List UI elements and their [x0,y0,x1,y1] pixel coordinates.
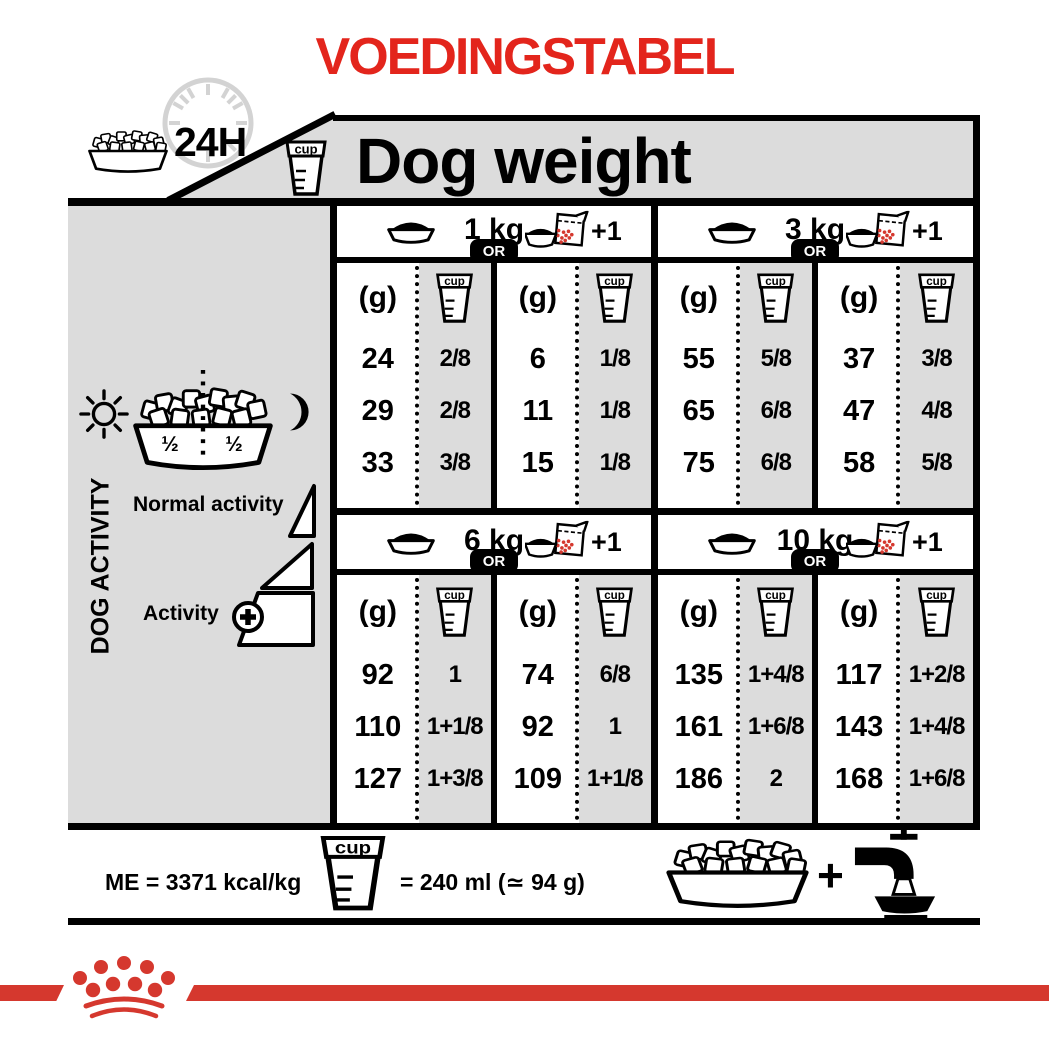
red-band-left [0,985,64,1001]
grams-header: (g) [359,595,397,629]
table-row: 585/8 [818,437,973,489]
cup-value: 1+1/8 [587,765,643,793]
feeding-table-page: cup [0,0,1049,1049]
table-row: 1101+1/8 [337,701,491,753]
measuring-cup-icon [916,272,957,324]
table-row: 474/8 [818,385,973,437]
red-band-right [186,985,1049,1001]
24h-label: 24H [174,119,246,166]
measuring-cup-icon [916,586,957,638]
grams-value: 92 [522,711,554,744]
page-title: VOEDINGSTABEL [0,27,1049,87]
dog-activity-label: DOG ACTIVITY [87,478,116,655]
kibble-bowl-icon-header [84,126,172,176]
bowl-pouch-icon [846,208,910,258]
table-row: 1171+2/8 [818,649,973,701]
measuring-cup-icon [755,272,796,324]
grams-header: (g) [680,281,718,315]
table-row: 61/8 [497,333,651,385]
cup-value: 1 [609,713,621,741]
activity-label: Activity [143,602,219,626]
activity-triangle-medium [259,541,315,591]
bowl-pouch-icon [846,518,910,568]
normal-activity-label: Normal activity [133,493,284,517]
cup-value: 6/8 [600,661,630,689]
grams-value: 75 [683,447,715,480]
measuring-cup-icon [755,586,796,638]
measuring-cup-icon [594,586,635,638]
cup-value: 1+4/8 [748,661,804,689]
subtable-3kg-kibble-only: (g) 555/8 656/8 756/8 [658,263,812,508]
grams-value: 109 [514,763,562,796]
cup-value: 1/8 [600,397,630,425]
cup-value: 5/8 [921,449,951,477]
plus-one-label: +1 [591,216,622,247]
grams-header: (g) [840,595,878,629]
table-right-border [973,115,980,829]
sun-icon [79,389,129,439]
moon-icon [283,391,313,433]
grams-value: 168 [835,763,883,796]
grams-value: 15 [522,447,554,480]
band-top-border [333,115,978,121]
or-badge: OR [470,549,518,573]
bowl-pouch-icon [525,518,589,568]
cup-value: 6/8 [761,449,791,477]
subtable-10kg-kibble-only: (g) 1351+4/8 1611+6/8 1862 [658,575,812,823]
bowl-pouch-icon [525,208,589,258]
cup-value: 4/8 [921,397,951,425]
footer-bottom-border [68,918,980,925]
or-badge: OR [791,549,839,573]
me-kcal-label: ME = 3371 kcal/kg [105,869,301,896]
table-row: 921 [497,701,651,753]
grams-header: (g) [840,281,878,315]
table-row: 1431+4/8 [818,701,973,753]
subtable-10kg-kibble-plus-wet: (g) 1171+2/8 1431+4/8 1681+6/8 [818,575,973,823]
measuring-cup-icon [434,586,475,638]
grams-value: 65 [683,395,715,428]
plus-circle-icon [230,599,266,635]
grams-value: 47 [843,395,875,428]
plus-sign: + [817,848,844,902]
cup-value: 1+2/8 [909,661,965,689]
subtable-1kg-kibble-plus-wet: (g) 61/8 111/8 151/8 [497,263,651,508]
subtable-6kg-kibble-only: (g) 921 1101+1/8 1271+3/8 [337,575,491,823]
grams-value: 33 [362,447,394,480]
cup-value: 1/8 [600,449,630,477]
table-row: 1862 [658,753,812,805]
cup-equivalence-label: = 240 ml (≃ 94 g) [400,869,585,896]
measuring-cup-icon-footer [317,834,389,912]
half-right-label: ½ [225,433,243,457]
cup-value: 1+1/8 [427,713,483,741]
cup-value: 2/8 [440,397,470,425]
section-header-3kg: 3 kg +1 OR [658,206,973,257]
table-row: 921 [337,649,491,701]
grams-header: (g) [680,595,718,629]
plus-one-label: +1 [912,216,943,247]
table-row: 151/8 [497,437,651,489]
royal-canin-crown-logo [70,955,178,1022]
grams-value: 92 [362,659,394,692]
table-row: 1611+6/8 [658,701,812,753]
table-row: 756/8 [658,437,812,489]
grams-header: (g) [519,595,557,629]
activity-triangle-small [287,483,317,539]
half-left-label: ½ [161,433,179,457]
grams-value: 74 [522,659,554,692]
band1-bottom-border [330,508,980,515]
table-row: 1091+1/8 [497,753,651,805]
cup-value: 1+6/8 [748,713,804,741]
subtable-1kg-kibble-only: (g) 242/8 292/8 333/8 [337,263,491,508]
grams-value: 37 [843,343,875,376]
plus-one-label: +1 [591,527,622,558]
table-bottom-border [68,823,980,830]
table-row: 746/8 [497,649,651,701]
cup-value: 1/8 [600,345,630,373]
section-header-10kg: 10 kg +1 OR [658,515,973,569]
table-row: 292/8 [337,385,491,437]
table-top-border [68,198,980,206]
measuring-cup-icon-header [283,139,329,197]
grams-value: 6 [530,343,546,376]
table-row: 656/8 [658,385,812,437]
cup-value: 5/8 [761,345,791,373]
grams-value: 24 [362,343,394,376]
plus-one-label: +1 [912,527,943,558]
cup-value: 2 [770,765,782,793]
cup-value: 3/8 [921,345,951,373]
grams-value: 11 [522,395,553,428]
dog-weight-title: Dog weight [356,124,691,198]
grams-value: 186 [675,763,723,796]
water-tap-icon [853,822,939,920]
table-row: 333/8 [337,437,491,489]
table-row: 1681+6/8 [818,753,973,805]
cup-value: 1 [449,661,461,689]
subtable-3kg-kibble-plus-wet: (g) 373/8 474/8 585/8 [818,263,973,508]
kibble-bowl-icon-footer [659,832,816,913]
subtable-6kg-kibble-plus-wet: (g) 746/8 921 1091+1/8 [497,575,651,823]
table-row: 373/8 [818,333,973,385]
section-header-6kg: 6 kg +1 OR [337,515,651,569]
grams-value: 58 [843,447,875,480]
cup-value: 1+4/8 [909,713,965,741]
cup-value: 2/8 [440,345,470,373]
measuring-cup-icon [434,272,475,324]
cup-value: 6/8 [761,397,791,425]
or-badge: OR [470,239,518,263]
half-half-bowl-icon [126,368,280,472]
grams-value: 127 [354,763,402,796]
grams-value: 29 [362,395,394,428]
table-row: 111/8 [497,385,651,437]
measuring-cup-icon [594,272,635,324]
cup-value: 1+3/8 [427,765,483,793]
grams-value: 135 [675,659,723,692]
grams-header: (g) [359,281,397,315]
grams-value: 110 [354,711,401,744]
table-row: 555/8 [658,333,812,385]
cup-value: 3/8 [440,449,470,477]
table-row: 1351+4/8 [658,649,812,701]
cup-value: 1+6/8 [909,765,965,793]
section-header-1kg: 1 kg +1 OR [337,206,651,257]
grams-value: 161 [675,711,723,744]
or-badge: OR [791,239,839,263]
grams-header: (g) [519,281,557,315]
table-row: 242/8 [337,333,491,385]
grams-value: 55 [683,343,715,376]
grams-value: 143 [835,711,883,744]
table-row: 1271+3/8 [337,753,491,805]
grams-value: 117 [836,659,883,692]
